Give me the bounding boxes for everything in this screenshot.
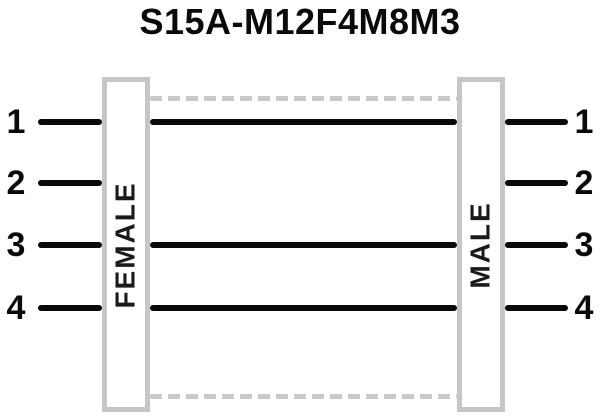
male-connector: MALE [457,77,505,412]
wire-right-stub-pin4 [505,305,568,311]
diagram-title: S15A-M12F4M8M3 [0,1,600,43]
pin-label-left-4: 4 [0,288,32,328]
female-connector-label: FEMALE [110,181,142,308]
male-connector-label: MALE [465,201,497,288]
shield-line-bottom [150,394,457,399]
wire-left-stub-pin2 [38,180,102,186]
wire-right-stub-pin2 [505,180,568,186]
wire-through-pin1 [150,119,457,125]
pin-label-right-3: 3 [568,225,600,265]
shield-line-top [150,96,457,101]
pin-label-left-1: 1 [0,102,32,142]
wiring-diagram: S15A-M12F4M8M3 FEMALE MALE 1 2 3 4 1 2 3… [0,0,600,417]
wire-left-stub-pin4 [38,305,102,311]
pin-label-left-2: 2 [0,163,32,203]
pin-label-left-3: 3 [0,225,32,265]
pin-label-right-4: 4 [568,288,600,328]
pin-label-right-2: 2 [568,163,600,203]
wire-right-stub-pin1 [505,119,568,125]
wire-through-pin3 [150,242,457,248]
female-connector: FEMALE [102,77,150,412]
wire-left-stub-pin1 [38,119,102,125]
wire-left-stub-pin3 [38,242,102,248]
pin-label-right-1: 1 [568,102,600,142]
wire-through-pin4 [150,305,457,311]
wire-right-stub-pin3 [505,242,568,248]
